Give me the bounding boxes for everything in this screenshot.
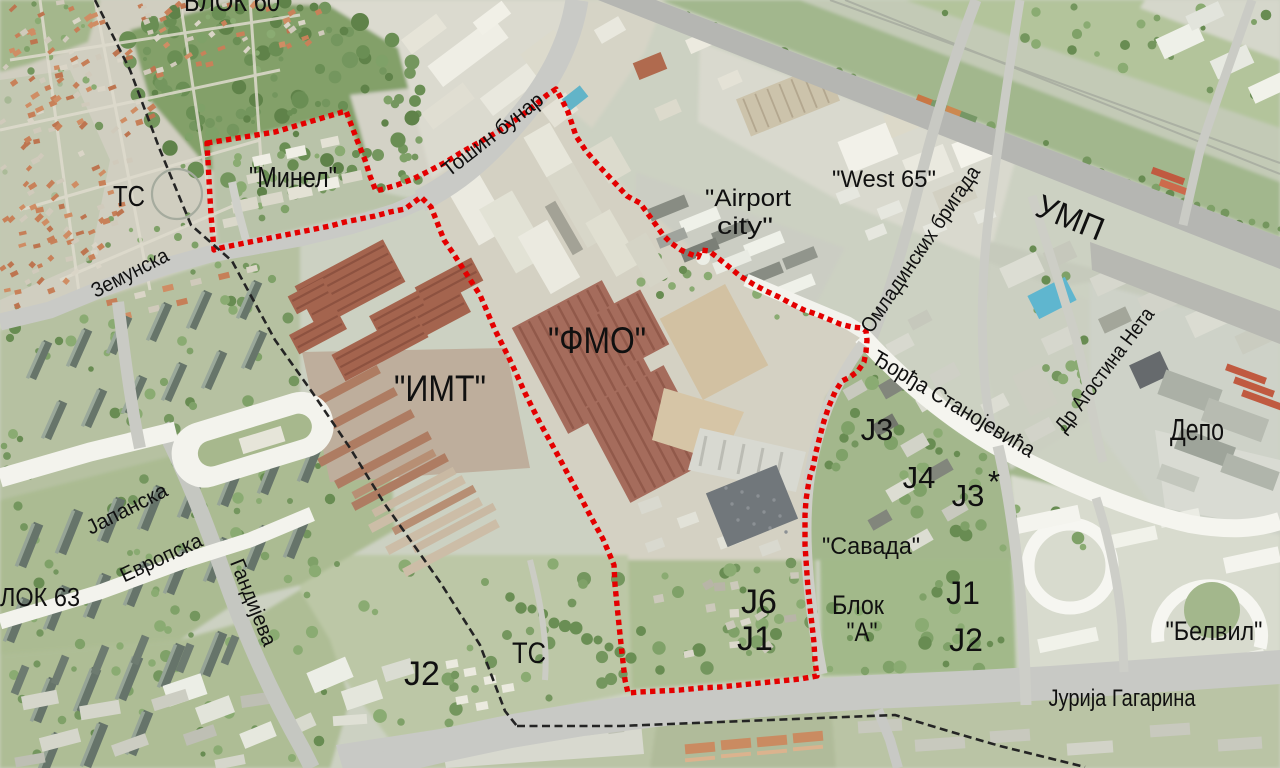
svg-text:"ФМО": "ФМО" [548, 320, 646, 361]
svg-text:ЛОК 63: ЛОК 63 [0, 582, 80, 612]
svg-text:J3: J3 [861, 412, 894, 447]
svg-text:Јурија Гагарина: Јурија Гагарина [1049, 685, 1197, 712]
svg-text:БЛОК 60: БЛОК 60 [184, 0, 280, 18]
svg-text:"Airport: "Airport [705, 185, 791, 212]
svg-text:J1: J1 [946, 575, 980, 611]
svg-text:J2: J2 [404, 655, 440, 693]
svg-text:"Белвил": "Белвил" [1166, 616, 1263, 646]
svg-text:*: * [988, 464, 1000, 499]
svg-text:J6: J6 [741, 583, 777, 621]
svg-text:Блок: Блок [832, 590, 884, 620]
svg-text:"Минел": "Минел" [249, 162, 337, 194]
svg-text:ТС: ТС [113, 181, 145, 213]
svg-text:Депо: Депо [1170, 412, 1224, 447]
svg-text:"А": "А" [847, 617, 878, 647]
svg-text:J2: J2 [949, 622, 983, 658]
svg-text:"Савада": "Савада" [822, 533, 920, 560]
svg-text:J3: J3 [952, 478, 985, 513]
svg-text:"ИМТ": "ИМТ" [394, 368, 486, 409]
svg-text:city": city" [717, 213, 773, 240]
svg-text:J1: J1 [737, 620, 773, 658]
svg-text:ТС: ТС [512, 637, 546, 670]
svg-text:"West 65": "West 65" [832, 166, 936, 193]
svg-text:J4: J4 [903, 460, 936, 495]
